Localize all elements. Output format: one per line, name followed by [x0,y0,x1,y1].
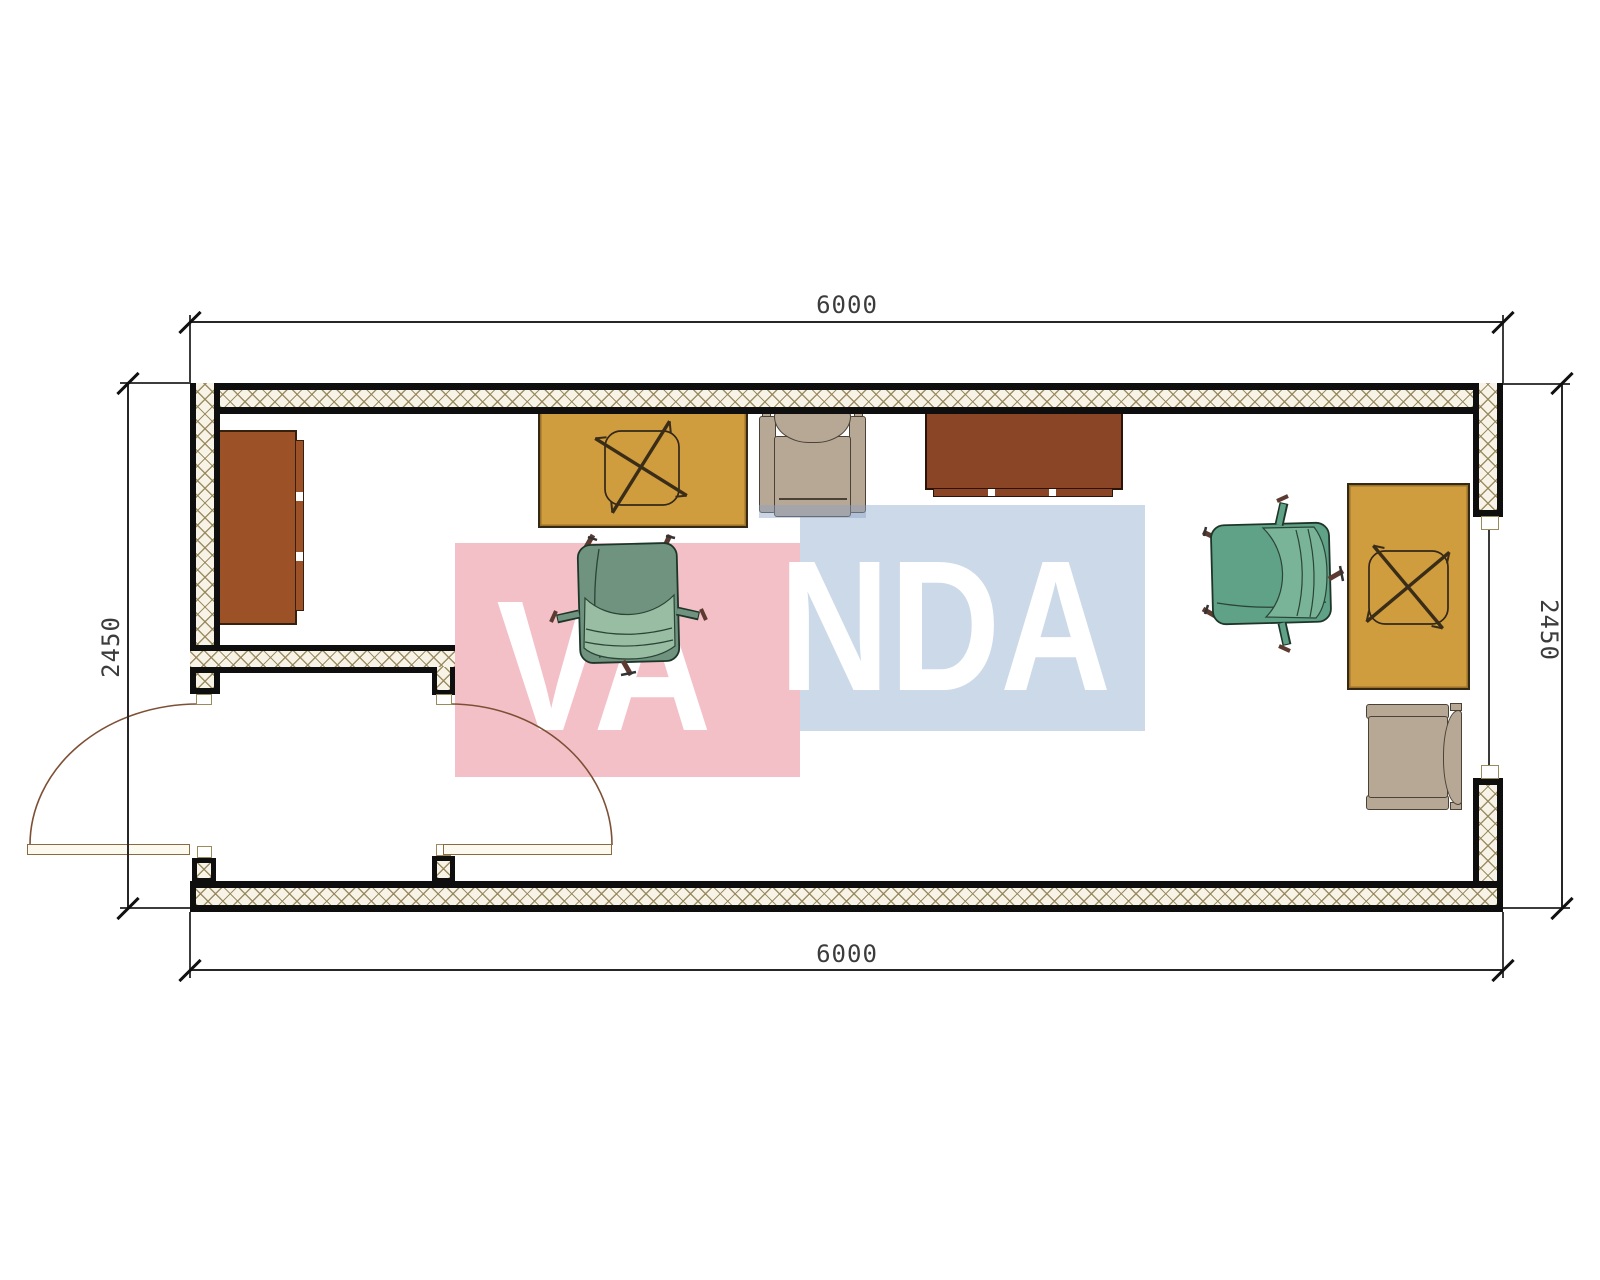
door-swing-arc-right [450,704,612,845]
dimension-label-right: 2450 [1537,570,1561,690]
door-pier-right [432,856,455,883]
window-jamb [1481,516,1499,530]
door-jamb [196,694,212,705]
office-chair-right [1203,496,1343,651]
floor-plan-canvas: VA NDA [0,0,1600,1280]
window-glazing-line [1488,530,1490,765]
door-leaf-left [27,844,190,855]
door-swing-arc-left [30,704,198,845]
plan-detail-layer [0,0,1600,1280]
dimension-line-left [127,383,129,908]
door-pier-left [192,858,216,883]
dimension-label-top: 6000 [787,293,907,317]
dimension-line-top [190,321,1503,323]
dimension-line-bottom [190,969,1503,971]
dimension-label-left: 2450 [99,587,123,707]
dimension-label-bottom: 6000 [787,942,907,966]
desk-chair-symbol [1332,511,1484,663]
desk-chair-symbol [567,393,716,542]
vestibule-partition [190,645,455,673]
door-jamb [197,846,212,858]
wall-right-upper [1473,383,1503,517]
wall-top [190,383,1503,414]
door-jamb [436,694,452,705]
office-chair-left [551,535,706,675]
door-leaf-right [443,844,612,855]
wall-bottom [190,881,1503,912]
vestibule-partition-return [432,667,455,695]
window-jamb [1481,765,1499,779]
